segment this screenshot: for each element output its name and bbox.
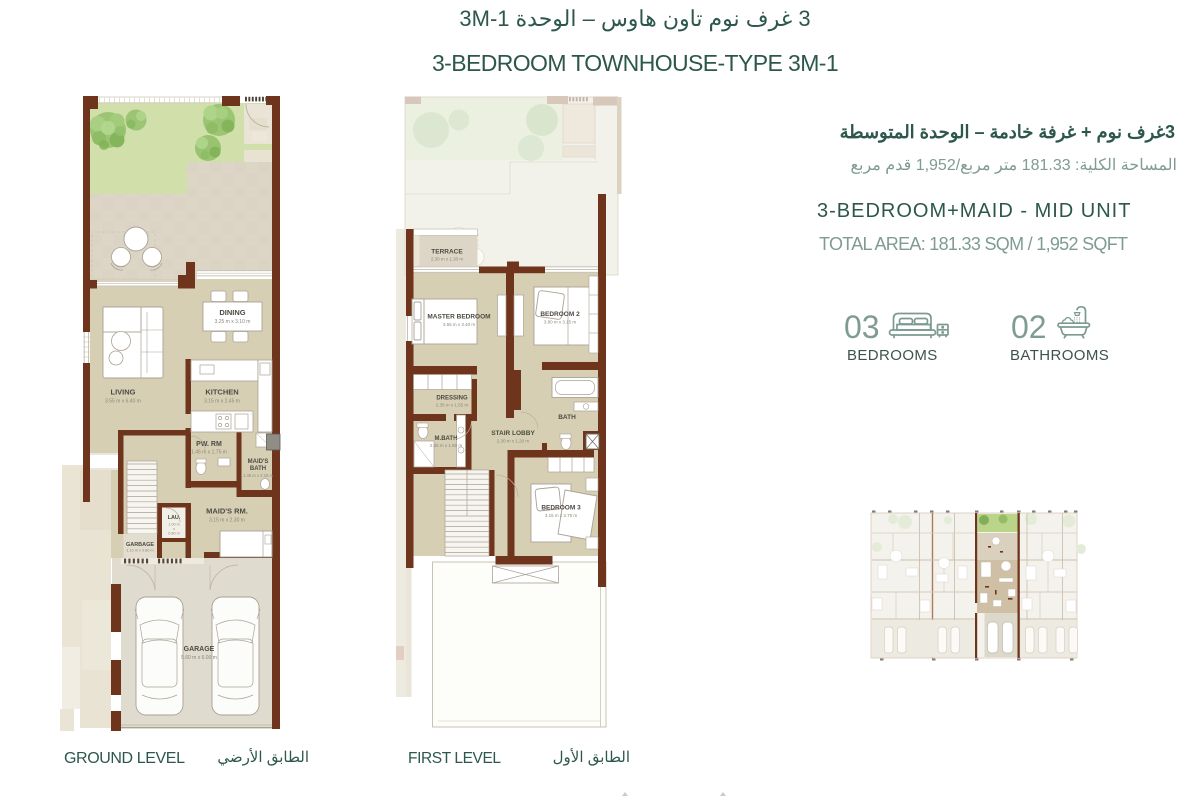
svg-text:MAID'S: MAID'S — [248, 459, 269, 465]
svg-text:5.60 m x 6.00 m: 5.60 m x 6.00 m — [181, 655, 217, 661]
svg-text:DRESSING: DRESSING — [436, 396, 468, 402]
svg-text:KITCHEN: KITCHEN — [205, 388, 238, 397]
svg-text:0.80 m: 0.80 m — [168, 532, 180, 536]
svg-text:3.15 m x 3.75 m: 3.15 m x 3.75 m — [545, 513, 578, 518]
svg-text:BATH: BATH — [558, 414, 576, 421]
svg-text:DINING: DINING — [219, 308, 245, 317]
svg-text:2.30 m x 1.20 m: 2.30 m x 1.20 m — [497, 439, 530, 444]
svg-text:PW. RM: PW. RM — [196, 441, 222, 448]
svg-text:3.15 m x 2.45 m: 3.15 m x 2.45 m — [204, 399, 240, 405]
svg-text:LAU.: LAU. — [168, 515, 181, 521]
svg-text:2.30 m x 1.30 m: 2.30 m x 1.30 m — [431, 257, 464, 262]
svg-text:BATH: BATH — [250, 466, 266, 472]
svg-text:3.25 m x 3.10 m: 3.25 m x 3.10 m — [215, 319, 251, 325]
svg-text:x: x — [173, 527, 175, 531]
svg-text:3.15 m x 2.30 m: 3.15 m x 2.30 m — [209, 518, 245, 524]
svg-text:2.35 m x 1.55 m: 2.35 m x 1.55 m — [436, 403, 469, 408]
svg-text:BEDROOM 2: BEDROOM 2 — [540, 311, 580, 318]
svg-text:STAIR LOBBY: STAIR LOBBY — [491, 430, 535, 437]
svg-text:1.10 m x 0.60 m: 1.10 m x 0.60 m — [126, 549, 153, 553]
svg-text:1.45 m x 2.10 m: 1.45 m x 2.10 m — [243, 473, 274, 478]
svg-text:3.55 m x 6.40 m: 3.55 m x 6.40 m — [105, 399, 141, 405]
svg-text:MAID'S RM.: MAID'S RM. — [206, 507, 248, 516]
svg-text:2.35 m x 1.80 m: 2.35 m x 1.80 m — [430, 443, 463, 448]
svg-text:1.45 m x 1.75 m: 1.45 m x 1.75 m — [191, 450, 227, 456]
svg-text:TERRACE: TERRACE — [431, 249, 463, 256]
svg-text:MASTER BEDROOM: MASTER BEDROOM — [427, 314, 490, 321]
svg-text:3.80 m x 3.15 m: 3.80 m x 3.15 m — [544, 320, 577, 325]
svg-text:1.00 m: 1.00 m — [168, 523, 180, 527]
svg-text:LIVING: LIVING — [110, 388, 135, 397]
svg-text:GARBAGE: GARBAGE — [126, 542, 154, 548]
svg-text:GARAGE: GARAGE — [184, 646, 215, 653]
svg-text:BEDROOM 3: BEDROOM 3 — [541, 505, 581, 512]
svg-text:3.55 m x 3.40 m: 3.55 m x 3.40 m — [443, 322, 476, 327]
